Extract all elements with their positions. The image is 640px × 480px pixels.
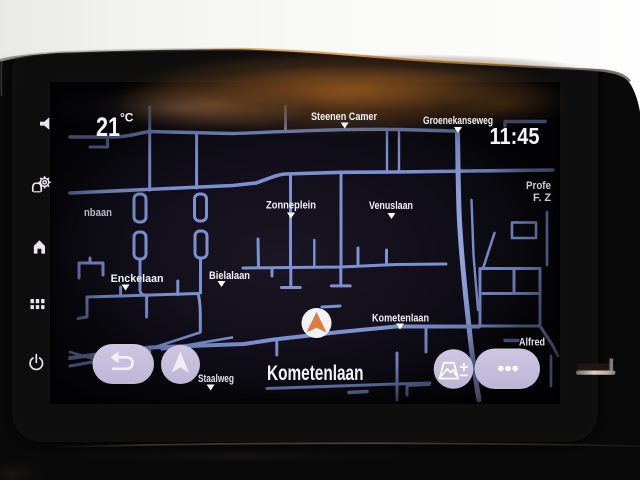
svg-text:11:45: 11:45 xyxy=(490,123,540,149)
svg-text:F. Z: F. Z xyxy=(533,192,551,204)
svg-text:Groenekanseweg: Groenekanseweg xyxy=(423,115,493,127)
svg-text:Steenen Camer: Steenen Camer xyxy=(311,111,378,123)
svg-text:°C: °C xyxy=(120,111,134,125)
svg-text:Profe: Profe xyxy=(526,180,551,192)
svg-text:Kometenlaan: Kometenlaan xyxy=(372,313,429,325)
svg-text:nbaan: nbaan xyxy=(84,207,112,219)
svg-text:Zonneplein: Zonneplein xyxy=(266,200,316,212)
svg-text:Venuslaan: Venuslaan xyxy=(369,200,413,212)
svg-text:Alfred: Alfred xyxy=(519,337,545,349)
svg-text:21: 21 xyxy=(96,112,120,142)
svg-text:Bielalaan: Bielalaan xyxy=(209,270,250,282)
svg-text:Enckelaan: Enckelaan xyxy=(111,273,164,285)
svg-text:Kometenlaan: Kometenlaan xyxy=(267,361,364,385)
svg-text:Staalweg: Staalweg xyxy=(198,373,234,385)
